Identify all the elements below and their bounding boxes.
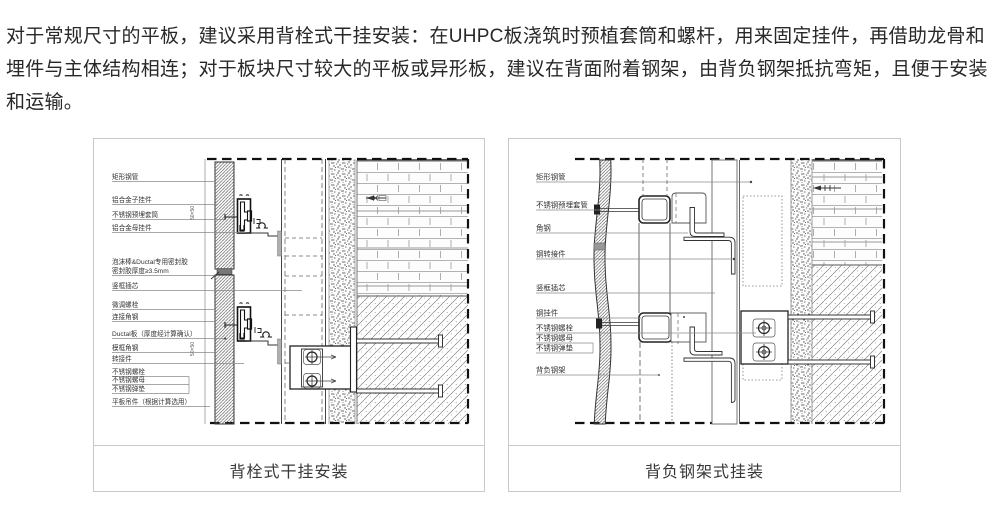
svg-text:不锈钢预埋套筒: 不锈钢预埋套筒 (112, 210, 159, 219)
svg-text:不锈钢螺母: 不锈钢螺母 (536, 334, 573, 343)
svg-text:密封胶厚度≥3.5mm: 密封胶厚度≥3.5mm (112, 266, 169, 275)
svg-text:铝合金母挂件: 铝合金母挂件 (112, 223, 152, 232)
svg-text:模框角钢: 模框角钢 (112, 343, 139, 352)
svg-text:不锈钢螺栓: 不锈钢螺栓 (536, 324, 574, 333)
svg-text:不锈钢螺母: 不锈钢螺母 (112, 375, 145, 384)
svg-text:Ductal板（厚度经计算确认）: Ductal板（厚度经计算确认） (112, 329, 197, 338)
svg-text:角钢: 角钢 (536, 224, 551, 233)
svg-text:钢挂件: 钢挂件 (536, 309, 559, 318)
svg-text:不锈钢弹垫: 不锈钢弹垫 (536, 344, 574, 353)
svg-text:平板吊件（根据计算选用）: 平板吊件（根据计算选用） (112, 397, 191, 406)
svg-text:竖框插芯: 竖框插芯 (536, 284, 566, 293)
svg-text:50×50: 50×50 (190, 206, 196, 220)
svg-text:50×50: 50×50 (190, 342, 196, 356)
svg-text:不锈钢螺栓: 不锈钢螺栓 (112, 367, 145, 376)
svg-text:不锈钢预埋套管: 不锈钢预埋套管 (536, 201, 588, 210)
svg-text:钢转接件: 钢转接件 (536, 250, 566, 259)
svg-text:竖框插芯: 竖框插芯 (112, 281, 139, 290)
svg-text:铝合金子挂件: 铝合金子挂件 (112, 195, 152, 204)
svg-text:泡沫棒&Ductal专用密封胶: 泡沫棒&Ductal专用密封胶 (112, 257, 188, 266)
svg-text:不锈钢弹垫: 不锈钢弹垫 (112, 384, 145, 393)
svg-text:矩形钢管: 矩形钢管 (536, 173, 566, 182)
svg-text:矩形钢管: 矩形钢管 (112, 172, 139, 181)
svg-text:转接件: 转接件 (112, 354, 132, 363)
svg-text:背负钢架: 背负钢架 (536, 366, 566, 375)
svg-text:连接角钢: 连接角钢 (112, 312, 139, 321)
svg-text:微调螺栓: 微调螺栓 (112, 300, 139, 309)
